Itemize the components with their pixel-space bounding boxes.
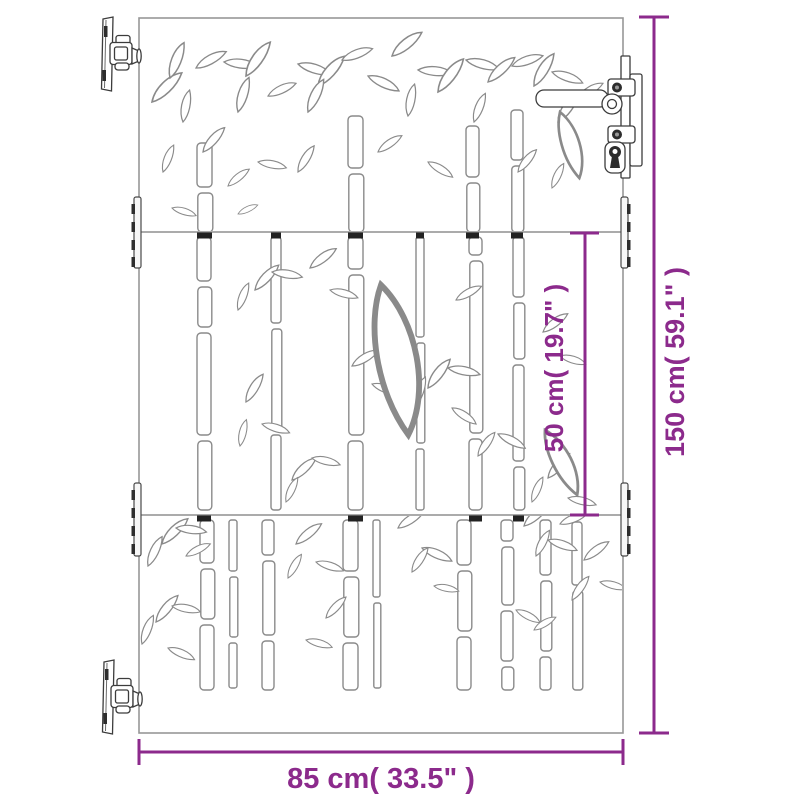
bamboo-cane-segment xyxy=(416,237,424,337)
bamboo-cane-segment xyxy=(198,193,213,232)
bamboo-cane-segment xyxy=(201,569,215,619)
bamboo-cane-segment xyxy=(197,237,211,281)
bamboo-cane-segment xyxy=(458,571,472,631)
bamboo-cane-segment xyxy=(469,237,482,255)
edge-plate-left-upper xyxy=(132,197,142,268)
dimension-width: 85 cm( 33.5" ) xyxy=(139,739,623,795)
hinge-icon xyxy=(103,660,143,734)
bamboo-cane-segment xyxy=(198,441,212,510)
bamboo-cane-segment xyxy=(513,237,524,297)
bamboo-cane-segment xyxy=(200,625,214,690)
handle-lever xyxy=(536,90,608,107)
bamboo-cane-segment xyxy=(514,303,525,359)
bamboo-cane-segment xyxy=(466,126,479,177)
bamboo-cane-segment xyxy=(348,116,363,168)
bamboo-cane-segment xyxy=(272,329,282,429)
bamboo-cane-segment xyxy=(230,577,238,637)
product-diagram: 150 cm( 59.1" ) 50 cm( 19.7" ) 85 cm( 33… xyxy=(0,0,800,800)
bamboo-cane-segment xyxy=(271,237,281,323)
bamboo-cane-segment xyxy=(198,287,212,327)
diagram-canvas: 150 cm( 59.1" ) 50 cm( 19.7" ) 85 cm( 33… xyxy=(0,0,800,800)
height-dimension-label: 150 cm( 59.1" ) xyxy=(660,267,690,457)
bamboo-cane-segment xyxy=(200,520,214,563)
bamboo-cane-segment xyxy=(457,637,471,690)
bamboo-cane-segment xyxy=(348,441,363,510)
bamboo-cane-segment xyxy=(467,183,480,232)
bamboo-cane-segment xyxy=(572,522,582,585)
bamboo-cane-segment xyxy=(512,166,524,232)
bamboo-cane-segment xyxy=(348,237,363,269)
bamboo-cane-segment xyxy=(502,667,514,690)
inner-height-dimension-label: 50 cm( 19.7" ) xyxy=(539,284,569,452)
bamboo-cane-segment xyxy=(501,520,513,541)
bamboo-cane-segment xyxy=(502,547,514,605)
edge-plate-right-upper xyxy=(621,197,631,268)
bamboo-cane-segment xyxy=(501,611,513,661)
bamboo-cane-segment xyxy=(344,577,359,637)
edge-plate-right-lower xyxy=(621,483,631,556)
bamboo-cane-segment xyxy=(514,467,525,510)
bamboo-cane-segment xyxy=(229,520,237,571)
dimension-height: 150 cm( 59.1" ) xyxy=(639,17,690,733)
bamboo-cane-segment xyxy=(540,657,551,690)
bamboo-cane-segment xyxy=(373,520,380,597)
bamboo-cane-segment xyxy=(271,435,281,510)
bamboo-cane-segment xyxy=(262,641,274,690)
bamboo-cane-segment xyxy=(343,643,358,690)
bamboo-cane-segment xyxy=(229,643,237,688)
bamboo-cane-segment xyxy=(457,520,471,565)
edge-plate-left-lower xyxy=(132,483,142,556)
bamboo-cane-segment xyxy=(349,174,364,232)
bamboo-cane-segment xyxy=(374,603,381,688)
bamboo-cane-segment xyxy=(511,110,523,160)
hinge-icon xyxy=(102,17,142,91)
width-dimension-label: 85 cm( 33.5" ) xyxy=(287,763,475,795)
bamboo-cane-segment xyxy=(263,561,275,635)
bamboo-cane-segment xyxy=(262,520,274,555)
bamboo-cane-segment xyxy=(573,591,583,690)
bamboo-cane-segment xyxy=(197,333,211,435)
bamboo-cane-segment xyxy=(541,581,552,651)
bamboo-cane-segment xyxy=(416,449,424,510)
bamboo-cane-segment xyxy=(343,520,358,571)
